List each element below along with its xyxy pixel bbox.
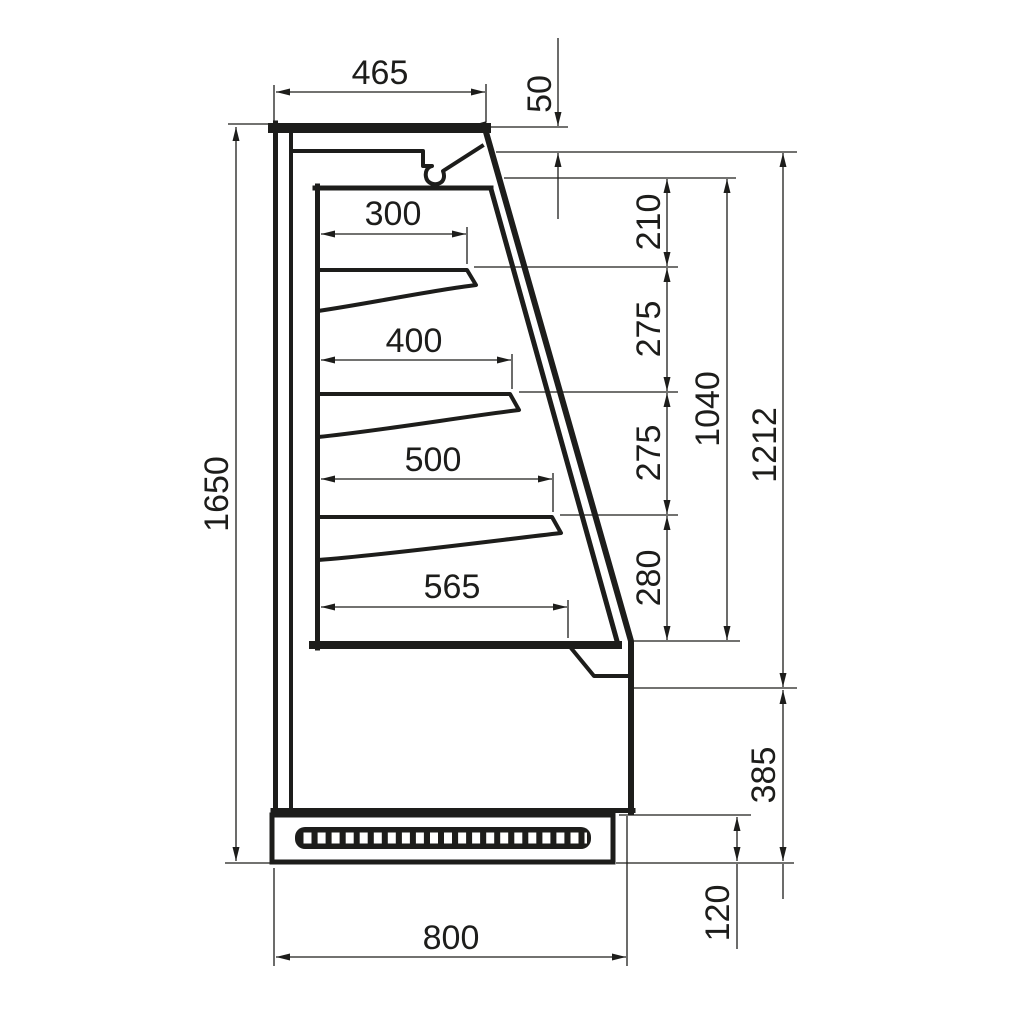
dim-top-depth: 465 bbox=[276, 54, 485, 92]
dim-shelf-2-depth: 400 bbox=[321, 322, 511, 360]
dim-plinth-height: 120 bbox=[699, 817, 737, 949]
front-glass-and-panel bbox=[484, 125, 631, 812]
dim-label-plinth-height: 120 bbox=[699, 885, 737, 942]
dim-label-overall-height: 1650 bbox=[198, 456, 236, 532]
dim-label-shelf-3-depth: 500 bbox=[405, 441, 462, 479]
dim-shelf-3-depth: 500 bbox=[321, 441, 552, 479]
dim-canopy-front-height: 50 bbox=[521, 38, 559, 219]
dim-label-base-shelf-depth: 565 bbox=[424, 568, 481, 606]
front-glass-inner bbox=[491, 189, 617, 641]
dim-front-opening-height: 1212 bbox=[746, 153, 784, 687]
technical-drawing-page: 465 50 300 400 500 565 210 275 275 280 1… bbox=[0, 0, 1024, 1024]
dim-display-opening-height: 1040 bbox=[689, 179, 727, 640]
dim-shelf-1-depth: 300 bbox=[321, 195, 466, 234]
dim-label-shelf-2-depth: 400 bbox=[386, 322, 443, 360]
shelf-3 bbox=[318, 517, 561, 560]
dim-label-lower-front-height: 385 bbox=[745, 747, 783, 804]
dim-base-shelf-depth: 565 bbox=[321, 568, 567, 607]
dim-label-overall-depth: 800 bbox=[423, 919, 480, 957]
shelf-2 bbox=[318, 394, 519, 437]
dim-label-base-spacing: 280 bbox=[630, 550, 668, 607]
grille-slots bbox=[304, 833, 588, 844]
deck-front-step bbox=[571, 648, 629, 676]
display-case-side-section-drawing: 465 50 300 400 500 565 210 275 275 280 1… bbox=[0, 0, 1024, 1024]
dim-lower-front-height: 385 bbox=[745, 690, 783, 899]
dim-label-shelf-2-spacing: 275 bbox=[630, 301, 668, 358]
dim-overall-depth: 800 bbox=[276, 919, 626, 957]
dim-label-canopy-height: 50 bbox=[521, 75, 559, 113]
shelf-1 bbox=[318, 270, 476, 311]
dim-shelf-spacing-chain: 210 275 275 280 bbox=[630, 179, 668, 640]
dim-label-shelf-3-spacing: 275 bbox=[630, 425, 668, 482]
canopy-underside-air-duct bbox=[293, 146, 482, 184]
dim-label-shelf-1-spacing: 210 bbox=[630, 194, 668, 251]
dim-overall-height: 1650 bbox=[198, 127, 236, 861]
dim-label-top-depth: 465 bbox=[352, 54, 409, 92]
dim-label-front-opening-height: 1212 bbox=[746, 407, 784, 483]
dim-label-display-opening-height: 1040 bbox=[689, 371, 727, 447]
dim-label-shelf-1-depth: 300 bbox=[365, 195, 422, 233]
ventilation-grille bbox=[295, 827, 591, 849]
